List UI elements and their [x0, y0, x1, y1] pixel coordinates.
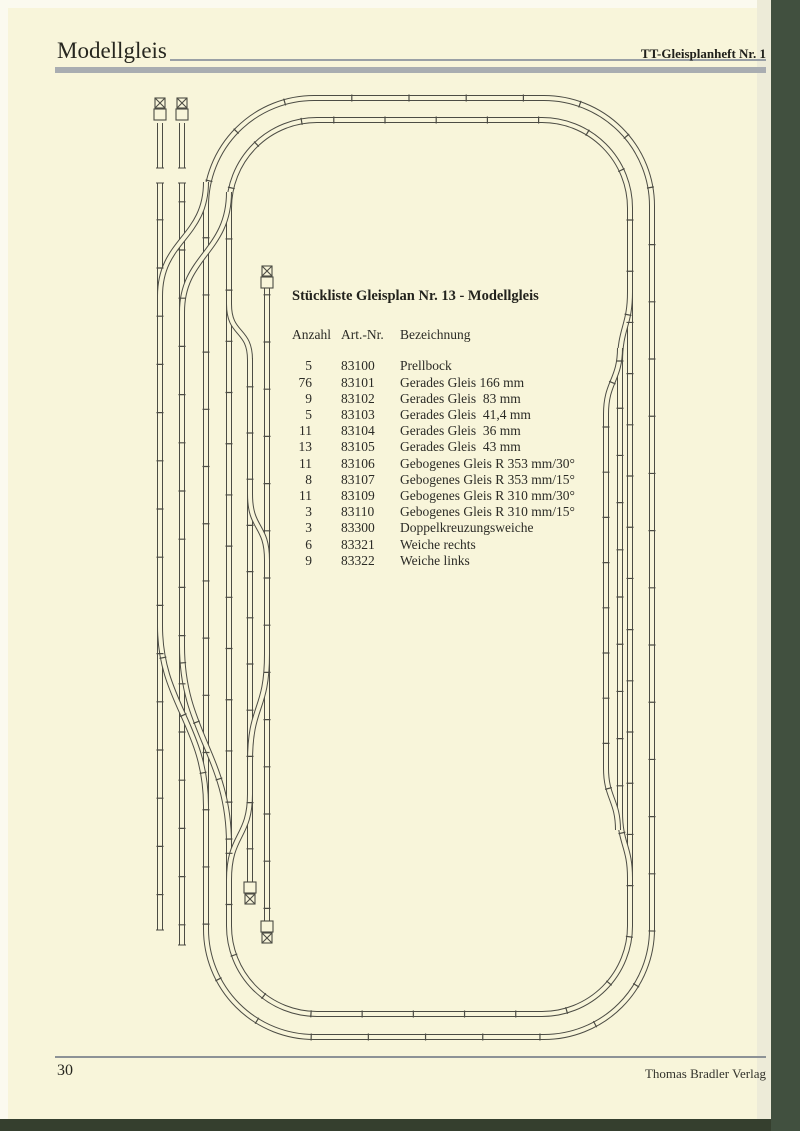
artnr-cell: 83109	[341, 488, 400, 504]
bezeichnung-cell: Gebogenes Gleis R 353 mm/15°	[400, 472, 602, 488]
bezeichnung-cell: Gerades Gleis 36 mm	[400, 423, 602, 439]
parts-list-title: Stückliste Gleisplan Nr. 13 - Modellglei…	[292, 288, 602, 304]
table-row: 9 83322 Weiche links	[292, 553, 602, 569]
booklet-title: TT-Gleisplanheft Nr. 1	[641, 46, 766, 62]
table-row: 76 83101 Gerades Gleis 166 mm	[292, 375, 602, 391]
buffer-stop-icon	[261, 921, 273, 943]
buffer-stop-icon	[154, 98, 166, 120]
bezeichnung-cell: Gebogenes Gleis R 310 mm/30°	[400, 488, 602, 504]
artnr-cell: 83106	[341, 456, 400, 472]
artnr-cell: 83300	[341, 520, 400, 536]
page-title: Modellgleis	[57, 38, 167, 64]
bezeichnung-cell: Gebogenes Gleis R 310 mm/15°	[400, 504, 602, 520]
column-header-bezeichnung: Bezeichnung	[400, 327, 602, 343]
parts-list-header: Anzahl Art.-Nr. Bezeichnung	[292, 327, 602, 343]
table-row: 13 83105 Gerades Gleis 43 mm	[292, 439, 602, 455]
artnr-cell: 83110	[341, 504, 400, 520]
table-row: 5 83103 Gerades Gleis 41,4 mm	[292, 407, 602, 423]
bezeichnung-cell: Gerades Gleis 41,4 mm	[400, 407, 602, 423]
publisher: Thomas Bradler Verlag	[645, 1066, 766, 1082]
table-row: 8 83107 Gebogenes Gleis R 353 mm/15°	[292, 472, 602, 488]
bezeichnung-cell: Gerades Gleis 43 mm	[400, 439, 602, 455]
parts-list: Stückliste Gleisplan Nr. 13 - Modellglei…	[292, 288, 602, 569]
anzahl-cell: 3	[292, 520, 341, 536]
table-row: 5 83100 Prellbock	[292, 358, 602, 374]
buffer-stop-icon	[244, 882, 256, 904]
bezeichnung-cell: Weiche rechts	[400, 537, 602, 553]
bezeichnung-cell: Prellbock	[400, 358, 602, 374]
bezeichnung-cell: Doppelkreuzungsweiche	[400, 520, 602, 536]
anzahl-cell: 9	[292, 553, 341, 569]
right-passing-tracks	[606, 292, 630, 878]
artnr-cell: 83322	[341, 553, 400, 569]
artnr-cell: 83104	[341, 423, 400, 439]
table-row: 3 83300 Doppelkreuzungsweiche	[292, 520, 602, 536]
table-row: 11 83106 Gebogenes Gleis R 353 mm/30°	[292, 456, 602, 472]
footer-rule	[55, 1056, 766, 1058]
anzahl-cell: 5	[292, 358, 341, 374]
artnr-cell: 83102	[341, 391, 400, 407]
header-bar	[55, 67, 766, 73]
table-row: 11 83104 Gerades Gleis 36 mm	[292, 423, 602, 439]
anzahl-cell: 11	[292, 423, 341, 439]
bezeichnung-cell: Gerades Gleis 166 mm	[400, 375, 602, 391]
artnr-cell: 83100	[341, 358, 400, 374]
bezeichnung-cell: Gebogenes Gleis R 353 mm/30°	[400, 456, 602, 472]
column-header-anzahl: Anzahl	[292, 327, 341, 343]
table-row: 11 83109 Gebogenes Gleis R 310 mm/30°	[292, 488, 602, 504]
artnr-cell: 83321	[341, 537, 400, 553]
anzahl-cell: 13	[292, 439, 341, 455]
artnr-cell: 83101	[341, 375, 400, 391]
anzahl-cell: 6	[292, 537, 341, 553]
anzahl-cell: 11	[292, 456, 341, 472]
anzahl-cell: 76	[292, 375, 341, 391]
artnr-cell: 83107	[341, 472, 400, 488]
column-header-artnr: Art.-Nr.	[341, 327, 400, 343]
artnr-cell: 83103	[341, 407, 400, 423]
bezeichnung-cell: Weiche links	[400, 553, 602, 569]
artnr-cell: 83105	[341, 439, 400, 455]
buffer-stop-icon	[261, 266, 273, 288]
anzahl-cell: 8	[292, 472, 341, 488]
buffer-stop-icon	[176, 98, 188, 120]
parts-list-rows: 5 83100 Prellbock 76 83101 Gerades Gleis…	[292, 358, 602, 569]
page-number: 30	[57, 1062, 73, 1080]
table-row: 9 83102 Gerades Gleis 83 mm	[292, 391, 602, 407]
anzahl-cell: 11	[292, 488, 341, 504]
bezeichnung-cell: Gerades Gleis 83 mm	[400, 391, 602, 407]
anzahl-cell: 3	[292, 504, 341, 520]
anzahl-cell: 9	[292, 391, 341, 407]
table-row: 6 83321 Weiche rechts	[292, 537, 602, 553]
anzahl-cell: 5	[292, 407, 341, 423]
table-row: 3 83110 Gebogenes Gleis R 310 mm/15°	[292, 504, 602, 520]
